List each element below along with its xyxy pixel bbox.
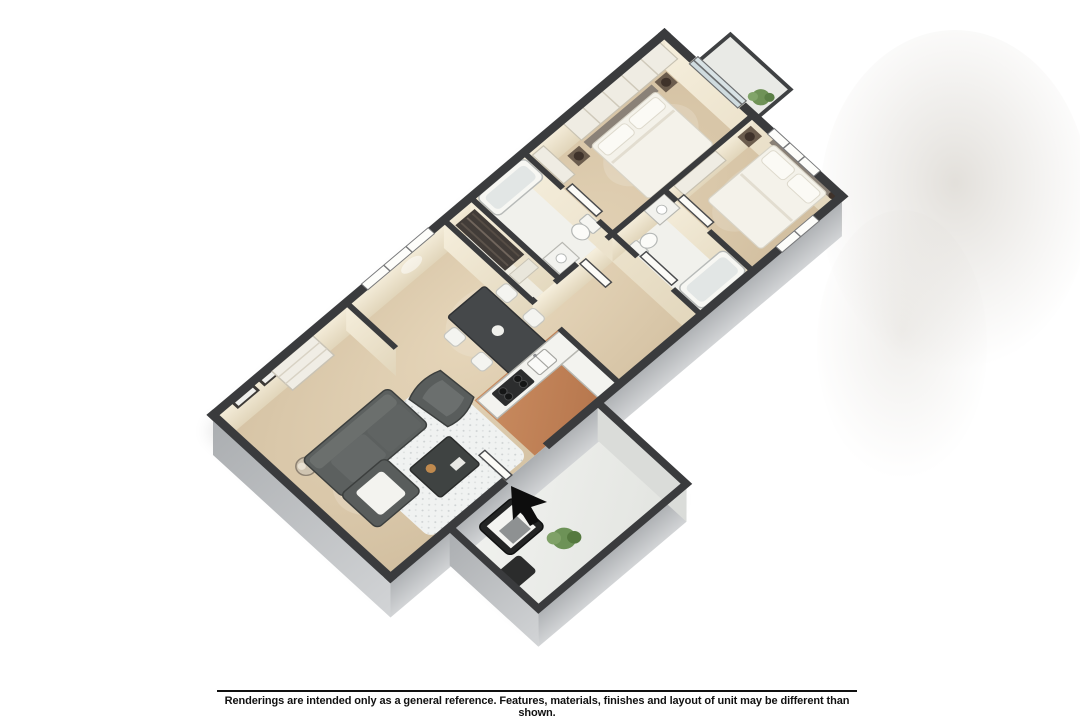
disclaimer-bar: Renderings are intended only as a genera…: [217, 690, 857, 719]
background-smudge-lower: [817, 210, 987, 480]
disclaimer-text: Renderings are intended only as a genera…: [217, 695, 857, 719]
floor-plan-rendering: [0, 0, 1080, 720]
floor-plan-page: Renderings are intended only as a genera…: [0, 0, 1080, 720]
